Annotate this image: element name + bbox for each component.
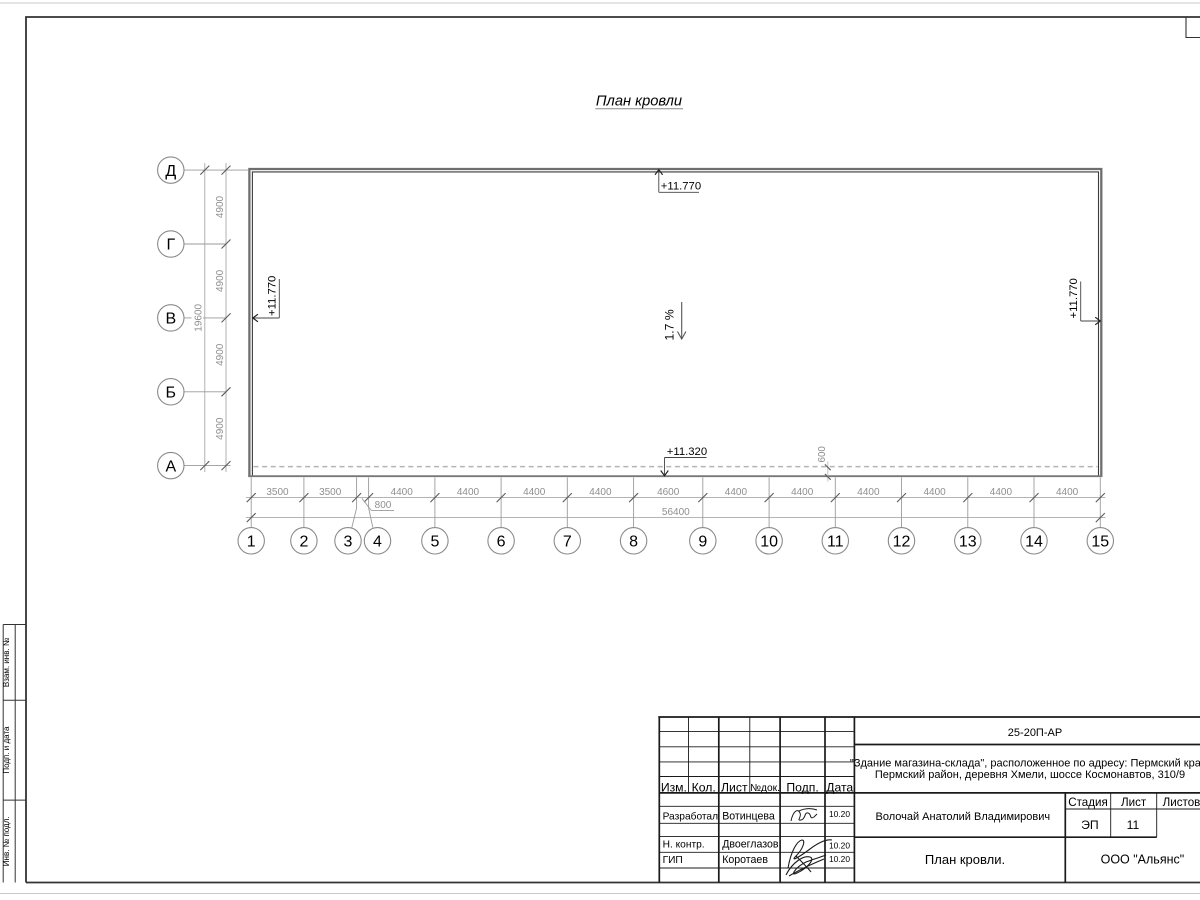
svg-text:Дата: Дата — [826, 780, 853, 794]
svg-text:"Здание магазина-склада", расп: "Здание магазина-склада", расположенное … — [850, 758, 1200, 770]
svg-text:Стадия: Стадия — [1068, 796, 1108, 809]
svg-text:+11.770: +11.770 — [661, 180, 701, 192]
svg-text:Б: Б — [166, 385, 177, 402]
svg-text:1.7 %: 1.7 % — [663, 309, 677, 340]
svg-text:15: 15 — [1091, 534, 1109, 551]
svg-text:Изм.: Изм. — [661, 780, 687, 794]
svg-text:Разработал: Разработал — [663, 811, 719, 823]
svg-text:Коротаев: Коротаев — [722, 854, 768, 866]
svg-text:4900: 4900 — [215, 269, 226, 292]
svg-text:600: 600 — [817, 446, 828, 463]
svg-text:4400: 4400 — [457, 487, 480, 498]
svg-text:4900: 4900 — [215, 417, 226, 440]
svg-text:5: 5 — [430, 534, 439, 551]
svg-text:4400: 4400 — [857, 487, 880, 498]
svg-text:Лист: Лист — [1121, 796, 1147, 809]
svg-text:В: В — [165, 311, 176, 328]
svg-text:1: 1 — [247, 534, 256, 551]
svg-text:Н. контр.: Н. контр. — [663, 839, 705, 850]
svg-text:10: 10 — [760, 534, 778, 551]
svg-text:ГИП: ГИП — [663, 855, 683, 866]
svg-text:Пермский район, деревня Хмели,: Пермский район, деревня Хмели, шоссе Кос… — [875, 769, 1185, 781]
svg-text:14: 14 — [1025, 534, 1043, 551]
svg-text:Лист: Лист — [721, 780, 748, 794]
svg-text:19600: 19600 — [194, 303, 205, 331]
svg-text:8: 8 — [629, 534, 638, 551]
svg-text:Взам. инв. №: Взам. инв. № — [2, 637, 11, 687]
svg-text:4600: 4600 — [657, 487, 680, 498]
svg-text:10.20: 10.20 — [829, 840, 850, 850]
svg-text:4400: 4400 — [1056, 487, 1079, 498]
svg-text:Листов: Листов — [1163, 796, 1200, 809]
svg-text:4400: 4400 — [791, 487, 814, 498]
svg-text:3: 3 — [344, 534, 353, 551]
svg-text:13: 13 — [959, 534, 977, 551]
svg-text:Кол.: Кол. — [692, 780, 716, 794]
svg-text:Г: Г — [166, 237, 175, 254]
svg-text:Подп.: Подп. — [786, 780, 818, 794]
svg-text:10.20: 10.20 — [829, 854, 850, 864]
svg-text:800: 800 — [375, 500, 392, 511]
svg-text:+11.770: +11.770 — [266, 276, 278, 316]
svg-text:3500: 3500 — [266, 487, 289, 498]
svg-text:56400: 56400 — [662, 507, 690, 518]
svg-text:ЭП: ЭП — [1081, 818, 1099, 832]
svg-text:11: 11 — [827, 534, 844, 551]
svg-text:25-20П-АР: 25-20П-АР — [1008, 727, 1062, 739]
svg-text:Двоеглазов: Двоеглазов — [722, 838, 779, 850]
svg-text:4400: 4400 — [523, 487, 546, 498]
svg-text:4400: 4400 — [589, 487, 612, 498]
svg-text:+11.770: +11.770 — [1068, 278, 1080, 318]
svg-text:4400: 4400 — [923, 487, 946, 498]
svg-text:4400: 4400 — [990, 487, 1013, 498]
svg-text:Волочай Анатолий Владимирович: Волочай Анатолий Владимирович — [875, 811, 1050, 823]
svg-text:7: 7 — [563, 534, 572, 551]
svg-text:9: 9 — [698, 534, 707, 551]
svg-text:10.20: 10.20 — [829, 809, 850, 819]
svg-text:Инв. № подл.: Инв. № подл. — [2, 816, 11, 866]
svg-text:А: А — [165, 458, 176, 475]
svg-text:+11.320: +11.320 — [667, 446, 707, 458]
svg-text:2: 2 — [299, 534, 308, 551]
svg-text:4900: 4900 — [215, 195, 226, 218]
svg-text:Вотинцева: Вотинцева — [722, 811, 775, 823]
svg-text:3500: 3500 — [319, 487, 342, 498]
svg-text:12: 12 — [893, 534, 911, 551]
svg-text:Д: Д — [165, 163, 176, 180]
svg-text:План кровли.: План кровли. — [925, 852, 1005, 867]
svg-text:4400: 4400 — [725, 487, 748, 498]
svg-text:План кровли: План кровли — [596, 93, 682, 109]
svg-text:Подп. и дата: Подп. и дата — [2, 726, 11, 774]
svg-text:11: 11 — [1127, 818, 1140, 832]
svg-text:4: 4 — [373, 534, 382, 551]
svg-text:4900: 4900 — [215, 343, 226, 366]
svg-text:4400: 4400 — [391, 487, 414, 498]
svg-text:6: 6 — [497, 534, 506, 551]
svg-text:№док.: №док. — [750, 783, 780, 794]
svg-text:ООО "Альянс": ООО "Альянс" — [1101, 852, 1185, 866]
